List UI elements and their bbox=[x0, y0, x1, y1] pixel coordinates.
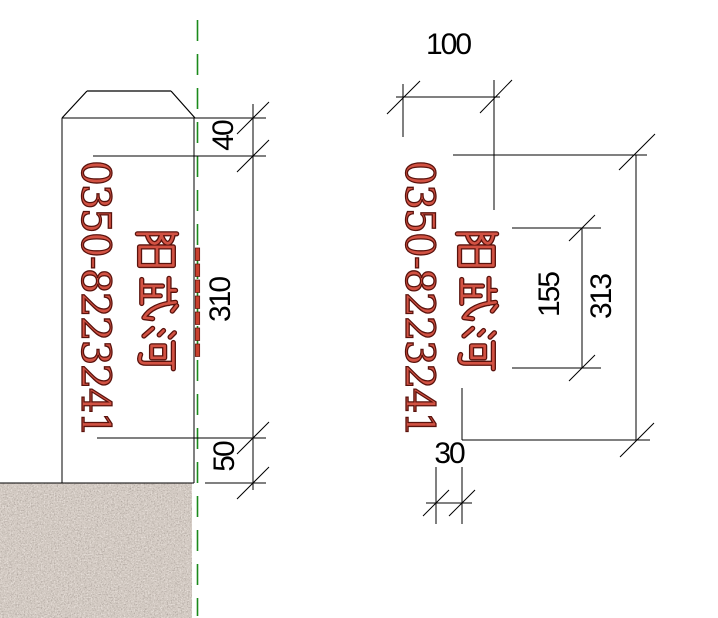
river-name-side: 阳武河 bbox=[453, 224, 503, 374]
river-char-yang-glyph bbox=[133, 224, 181, 272]
river-char-wu-glyph bbox=[133, 274, 181, 322]
river-char-yang-glyph bbox=[453, 224, 501, 272]
dim-label-30: 30 bbox=[419, 439, 479, 469]
dim-label-40: 40 bbox=[209, 106, 239, 166]
river-char-yang: 阳 bbox=[133, 224, 181, 272]
dim-label-100: 100 bbox=[418, 30, 478, 60]
river-char-he-glyph bbox=[453, 324, 501, 372]
river-char-he bbox=[453, 324, 501, 372]
phone-number-side: 0350-8223241 bbox=[398, 158, 440, 438]
cad-drawing-canvas: 0350-8223241 阳武河 阳 武 河 0350-8223241 bbox=[0, 0, 718, 618]
dim-label-155: 155 bbox=[535, 265, 565, 325]
dim-label-50: 50 bbox=[210, 427, 240, 487]
dim-label-310: 310 bbox=[206, 270, 236, 330]
river-char-he-glyph bbox=[133, 324, 181, 372]
river-char-yang bbox=[453, 224, 501, 272]
phone-number-elevation: 0350-8223241 bbox=[74, 158, 116, 438]
river-char-wu bbox=[453, 274, 501, 322]
river-char-wu-glyph bbox=[453, 274, 501, 322]
centerline-red-dashes bbox=[195, 248, 199, 357]
river-char-wu: 武 bbox=[133, 274, 181, 322]
elevation-post-bevel bbox=[62, 91, 195, 118]
river-char-he: 河 bbox=[133, 324, 181, 372]
dim-label-313: 313 bbox=[587, 267, 617, 327]
river-name-elevation: 阳武河 阳 武 河 bbox=[133, 224, 183, 374]
